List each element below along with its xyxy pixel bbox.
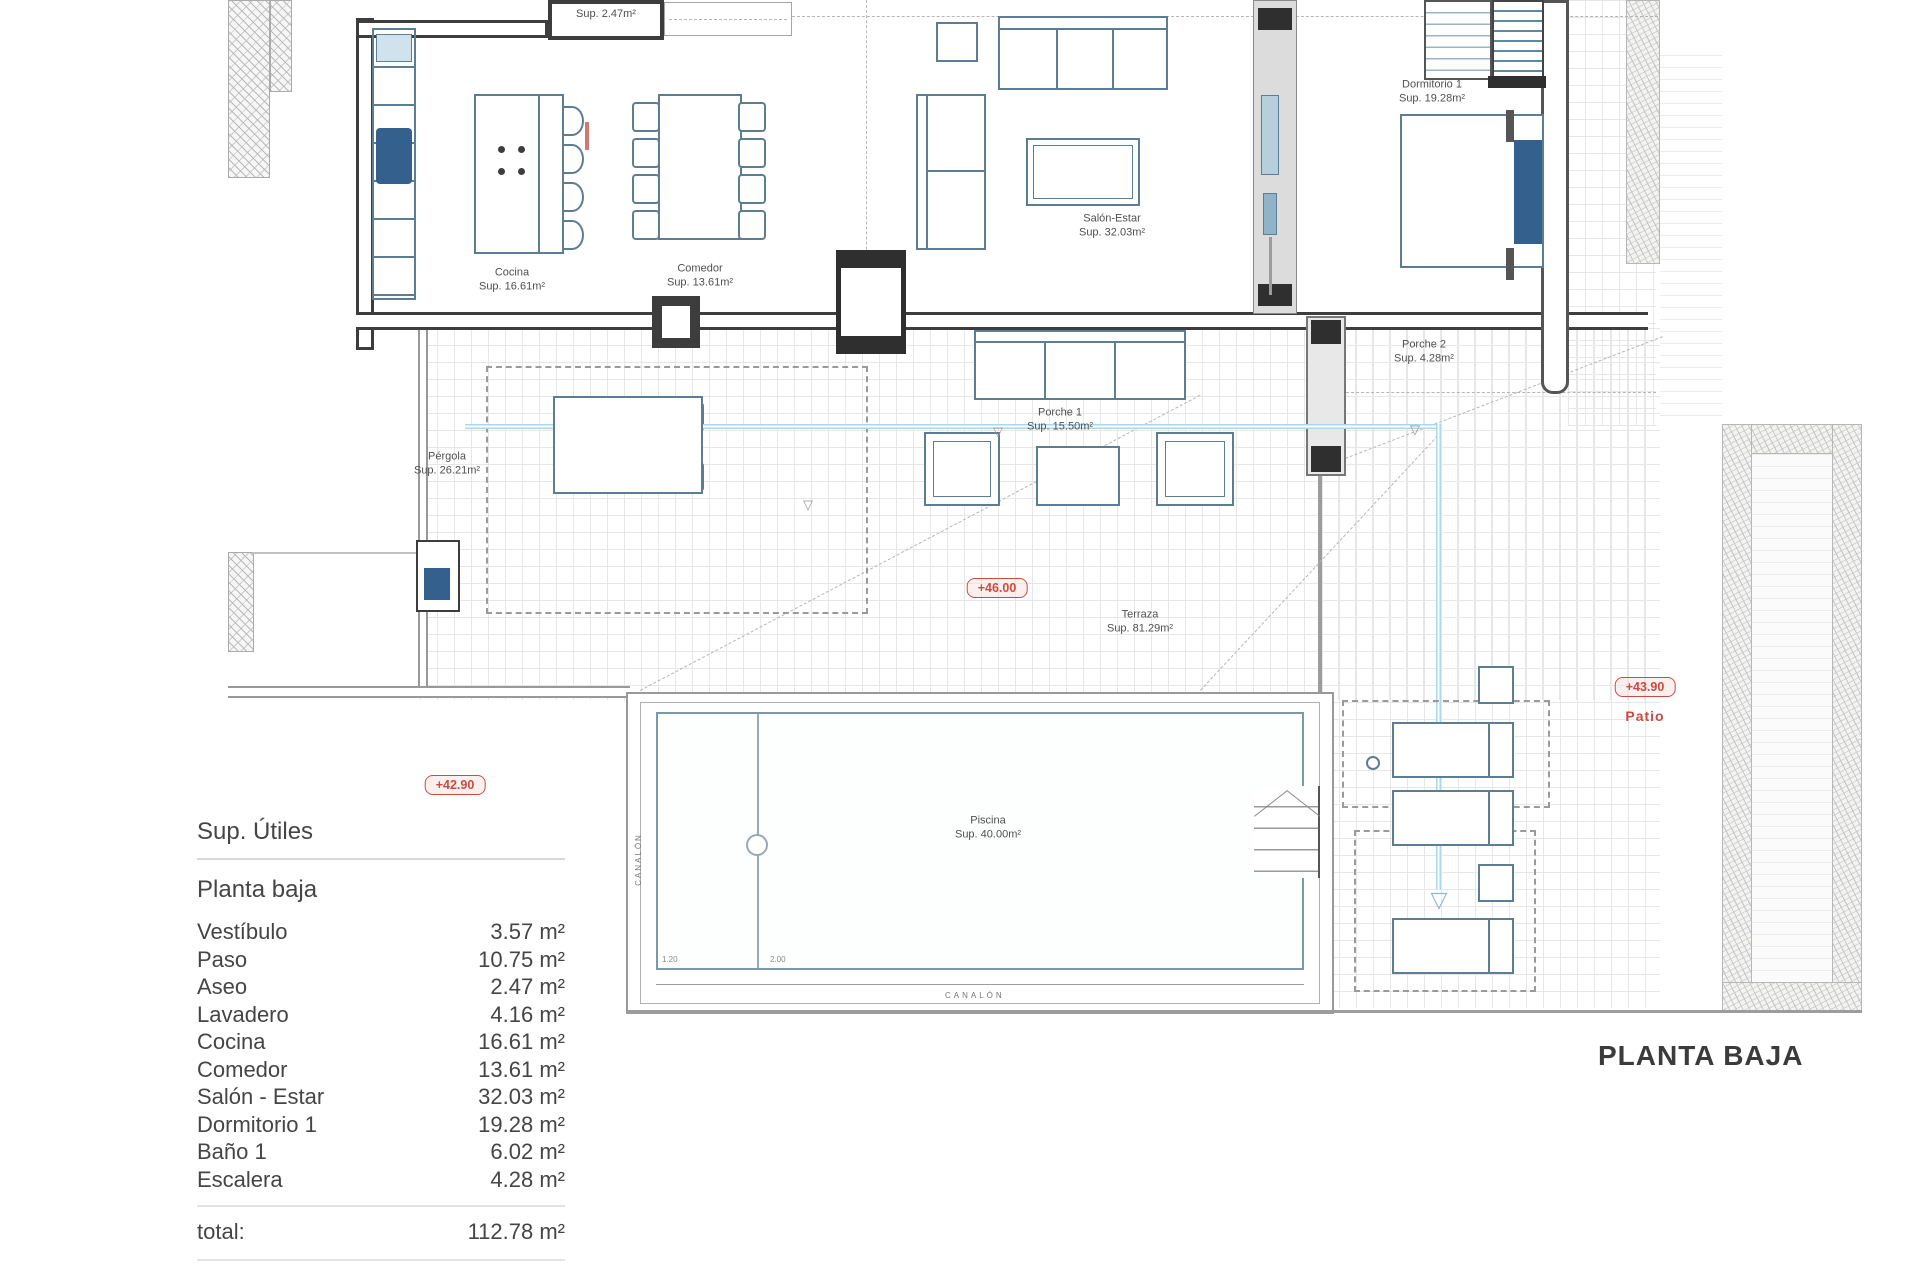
stepped-wall-hatch-b — [270, 0, 292, 92]
porch-armchair — [924, 432, 1000, 506]
nightstand — [1506, 248, 1514, 280]
structural-column-cap-bottom — [836, 336, 906, 354]
room-label-terraza: Terraza Sup. 81.29m² — [1107, 608, 1173, 637]
drain-outlet-icon: ▽ — [1431, 887, 1448, 913]
room-sup: Sup. 19.28m² — [1399, 92, 1465, 106]
media-wall-shelf — [1261, 95, 1279, 175]
armchair-inner — [1165, 441, 1225, 497]
dining-chair — [738, 102, 766, 132]
summary-header: Sup. Útiles — [197, 818, 565, 846]
row-value: 2.47 m² — [490, 973, 565, 1001]
row-value: 32.03 m² — [478, 1083, 565, 1111]
small-round-table — [1366, 756, 1380, 770]
table-row: Salón - Estar32.03 m² — [197, 1083, 565, 1111]
burner-dot — [498, 168, 505, 175]
room-label-salon: Salón-Estar Sup. 32.03m² — [1079, 212, 1145, 241]
burner-dot — [518, 146, 525, 153]
sofa-three-seat — [998, 16, 1168, 90]
table-row: Lavadero4.16 m² — [197, 1001, 565, 1029]
patio-name-label: Patio — [1625, 708, 1664, 724]
bed-headboard — [1514, 140, 1542, 244]
terrace-pier-cap-bottom — [1311, 446, 1341, 472]
table-row: Aseo2.47 m² — [197, 973, 565, 1001]
dining-table — [658, 94, 742, 240]
room-sup: Sup. 16.61m² — [479, 280, 545, 294]
staircase-upper — [1492, 0, 1544, 80]
room-name: Cocina — [479, 266, 545, 280]
patio-wall-bottom — [1722, 982, 1862, 1012]
room-label-aseo: Sup. 2.47m² — [576, 7, 636, 21]
staircase-base-wall — [1488, 76, 1546, 88]
media-wall-cap-top — [1258, 8, 1292, 30]
island-edge-line — [538, 96, 540, 252]
room-label-porche2: Porche 2 Sup. 4.28m² — [1394, 338, 1454, 367]
row-label: Escalera — [197, 1166, 283, 1194]
table-row: Escalera4.28 m² — [197, 1166, 565, 1194]
room-sup: Sup. 26.21m² — [414, 464, 480, 478]
porch-coffee-table — [1036, 446, 1120, 506]
row-value: 4.28 m² — [490, 1166, 565, 1194]
patio-wall-left — [1722, 424, 1752, 1012]
row-value: 16.61 m² — [478, 1028, 565, 1056]
table-row: Vestíbulo3.57 m² — [197, 918, 565, 946]
kitchen-upper-cabinet — [376, 34, 412, 62]
stair-chevron-right — [1286, 790, 1320, 817]
level-marker-icon: ▽ — [803, 497, 813, 513]
room-name: Porche 1 — [1027, 406, 1093, 420]
lounger-pillow-line — [1488, 920, 1490, 972]
level-badge-terrace: +46.00 — [967, 578, 1028, 598]
dining-chair — [632, 102, 660, 132]
summary-section-title: Planta baja — [197, 876, 565, 904]
terrace-pier-cap-top — [1311, 320, 1341, 344]
summary-divider — [197, 858, 565, 860]
porch-sofa — [974, 330, 1186, 400]
nightstand — [1506, 110, 1514, 142]
dining-chair — [738, 174, 766, 204]
sofa-two-seat — [916, 94, 986, 250]
media-wall-stem — [1269, 237, 1272, 295]
media-wall-unit — [1263, 193, 1277, 235]
room-name: Comedor — [667, 262, 733, 276]
room-sup: Sup. 40.00m² — [955, 828, 1021, 842]
total-value: 112.78 m² — [468, 1217, 565, 1247]
burner-dot — [518, 168, 525, 175]
canalon-label-vertical: CANALÓN — [634, 833, 643, 886]
row-label: Paso — [197, 946, 247, 974]
stepped-wall-hatch-a — [228, 0, 270, 178]
sofa-back-line — [976, 341, 1184, 343]
room-sup: Sup. 15.50m² — [1027, 420, 1093, 434]
sofa-cushion-divider — [1056, 28, 1058, 90]
room-name: Pérgola — [414, 450, 480, 464]
coffee-table — [1026, 138, 1140, 206]
wall-pillar — [652, 296, 700, 348]
room-name: Porche 2 — [1394, 338, 1454, 352]
porch2-dashed-line — [1346, 392, 1656, 393]
structural-column-cap-top — [836, 250, 906, 268]
row-label: Aseo — [197, 973, 247, 1001]
dining-chair — [738, 138, 766, 168]
summary-total-divider — [197, 1205, 565, 1207]
side-table — [936, 22, 978, 62]
room-label-porche1: Porche 1 Sup. 15.50m² — [1027, 406, 1093, 435]
sun-lounger — [1392, 722, 1514, 778]
corridor-centerline — [669, 19, 787, 20]
terrace-staircase — [1254, 786, 1320, 878]
room-name: Dormitorio 1 — [1399, 78, 1465, 92]
sofa-back-line — [926, 96, 928, 248]
row-label: Salón - Estar — [197, 1083, 324, 1111]
dining-chair — [632, 138, 660, 168]
armchair-inner — [933, 441, 991, 497]
room-sup: Sup. 2.47m² — [576, 7, 636, 21]
terrace-west-wall — [418, 330, 428, 696]
room-sup: Sup. 32.03m² — [1079, 226, 1145, 240]
room-sup: Sup. 81.29m² — [1107, 622, 1173, 636]
row-label: Dormitorio 1 — [197, 1111, 317, 1139]
row-label: Cocina — [197, 1028, 265, 1056]
outdoor-dining-table — [553, 396, 703, 494]
lower-left-wall — [228, 686, 630, 698]
left-lower-wall-hatch — [228, 552, 254, 652]
lounger-pillow-line — [1488, 792, 1490, 844]
room-label-pergola: Pérgola Sup. 26.21m² — [414, 450, 480, 479]
patio-side-table — [1478, 864, 1514, 902]
row-label: Vestíbulo — [197, 918, 288, 946]
room-name: Piscina — [955, 814, 1021, 828]
stone-wall-right-of-house — [1626, 0, 1660, 264]
row-value: 19.28 m² — [478, 1111, 565, 1139]
total-row: total:112.78 m² — [197, 1217, 565, 1247]
table-row: Cocina16.61 m² — [197, 1028, 565, 1056]
patio-interior — [1752, 454, 1832, 982]
row-value: 3.57 m² — [490, 918, 565, 946]
media-wall-cap-bottom — [1258, 284, 1292, 306]
drawing-title: PLANTA BAJA — [1598, 1040, 1803, 1072]
sun-lounger — [1392, 918, 1514, 974]
sofa-cushion-divider — [1112, 28, 1114, 90]
patio-side-table — [1478, 666, 1514, 704]
summary-bottom-divider — [197, 1259, 565, 1261]
lower-left-edge-line — [252, 552, 420, 554]
sofa-back-line — [1000, 28, 1166, 30]
sun-lounger — [1392, 790, 1514, 846]
floor-plan-sheet: ▽ 1.20 2.00 CANALÓN CANALÓN ▽ ▽ ▽ Sup. 2… — [0, 0, 1920, 1280]
stair-chevron-left — [1254, 790, 1288, 817]
level-badge-patio: +43.90 — [1615, 677, 1676, 697]
bbq-unit — [416, 540, 460, 612]
pool-canal-line — [656, 984, 1304, 985]
row-value: 10.75 m² — [478, 946, 565, 974]
sofa-cushion-divider — [1044, 341, 1046, 400]
corridor-dashed-box — [664, 2, 792, 36]
paving-strip-before-patio — [1660, 55, 1722, 425]
dining-chair — [632, 174, 660, 204]
sofa-cushion-divider — [1114, 341, 1116, 400]
table-row: Comedor13.61 m² — [197, 1056, 565, 1084]
row-value: 6.02 m² — [490, 1138, 565, 1166]
porch-armchair — [1156, 432, 1234, 506]
row-label: Lavadero — [197, 1001, 289, 1029]
room-label-comedor: Comedor Sup. 13.61m² — [667, 262, 733, 291]
pool-depth-label: 2.00 — [770, 955, 786, 964]
burner-dot — [498, 146, 505, 153]
room-name: Terraza — [1107, 608, 1173, 622]
dining-chair — [738, 210, 766, 240]
bbq-grill — [424, 568, 450, 600]
sofa-cushion-divider — [926, 170, 984, 172]
total-label: total: — [197, 1217, 245, 1247]
kitchen-sink — [376, 128, 412, 184]
wardrobe — [1424, 0, 1492, 80]
level-marker-icon: ▽ — [1410, 422, 1420, 438]
dining-chair — [632, 210, 660, 240]
room-name: Salón-Estar — [1079, 212, 1145, 226]
row-value: 4.16 m² — [490, 1001, 565, 1029]
lounger-pillow-line — [1488, 724, 1490, 776]
coffee-table-inner — [1033, 145, 1133, 199]
area-summary-table: Sup. Útiles Planta baja Vestíbulo3.57 m²… — [197, 818, 565, 1271]
patio-wall-right — [1832, 424, 1862, 1012]
room-sup: Sup. 13.61m² — [667, 276, 733, 290]
room-sup: Sup. 4.28m² — [1394, 352, 1454, 366]
table-row: Baño 16.02 m² — [197, 1138, 565, 1166]
level-marker-icon: ▽ — [993, 424, 1003, 440]
room-label-cocina: Cocina Sup. 16.61m² — [479, 266, 545, 295]
level-badge-lower: +42.90 — [425, 775, 486, 795]
row-label: Baño 1 — [197, 1138, 267, 1166]
row-label: Comedor — [197, 1056, 287, 1084]
table-row: Paso10.75 m² — [197, 946, 565, 974]
table-row: Dormitorio 119.28 m² — [197, 1111, 565, 1139]
pool-depth-label: 1.20 — [662, 955, 678, 964]
row-value: 13.61 m² — [478, 1056, 565, 1084]
room-label-dormitorio: Dormitorio 1 Sup. 19.28m² — [1399, 78, 1465, 107]
canalon-label-horizontal: CANALÓN — [945, 991, 1005, 1000]
house-south-wall — [356, 312, 1648, 330]
red-dimension-mark — [585, 122, 589, 150]
pool-drain-circle — [746, 834, 768, 856]
house-east-channel-wall — [1541, 0, 1569, 394]
kitchen-island — [474, 94, 564, 254]
room-label-piscina: Piscina Sup. 40.00m² — [955, 814, 1021, 843]
site-south-boundary — [626, 1010, 1862, 1013]
